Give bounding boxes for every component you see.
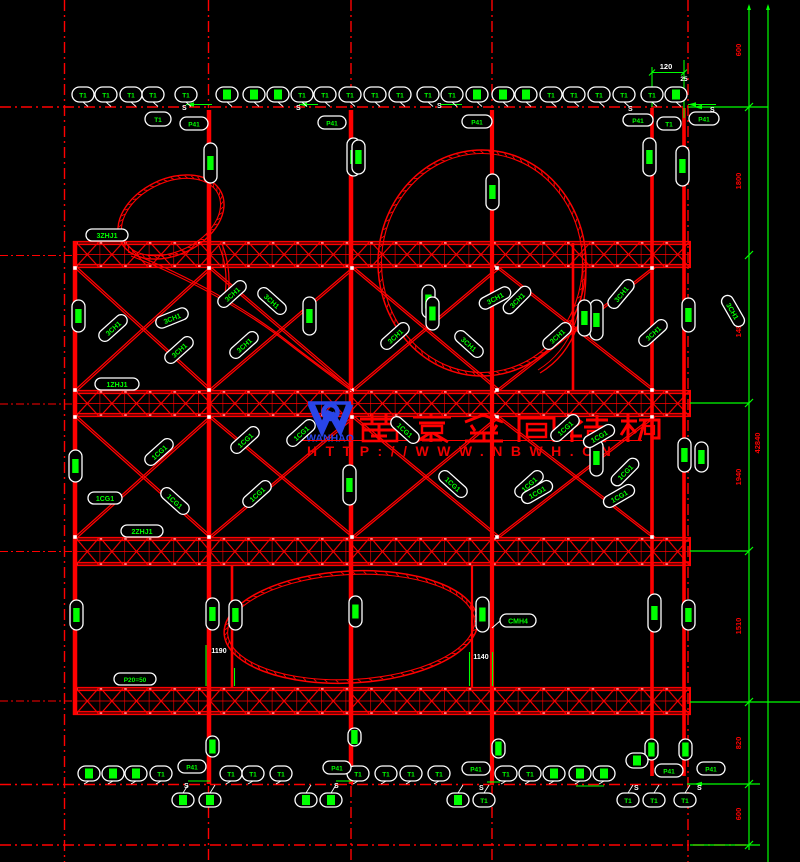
svg-text:S: S — [634, 785, 639, 792]
svg-text:P41: P41 — [471, 120, 483, 127]
svg-text:P41: P41 — [188, 122, 200, 129]
svg-text:T1: T1 — [407, 772, 415, 779]
svg-text:T1: T1 — [448, 93, 456, 100]
svg-text:P41: P41 — [663, 769, 675, 776]
svg-text:T1: T1 — [298, 93, 306, 100]
svg-text:T1: T1 — [321, 93, 329, 100]
svg-text:HTTP://WWW.NBWH.CN: HTTP://WWW.NBWH.CN — [307, 443, 619, 459]
svg-text:2ZHJ1: 2ZHJ1 — [131, 529, 152, 536]
svg-text:T1: T1 — [665, 122, 673, 129]
svg-text:T1: T1 — [526, 772, 534, 779]
svg-text:S: S — [437, 103, 442, 110]
svg-text:T1: T1 — [227, 772, 235, 779]
svg-text:T1: T1 — [396, 93, 404, 100]
svg-text:1190: 1190 — [211, 648, 226, 655]
svg-text:120: 120 — [660, 62, 673, 71]
svg-text:T1: T1 — [424, 93, 432, 100]
svg-text:P41: P41 — [470, 767, 482, 774]
svg-text:T1: T1 — [249, 772, 257, 779]
svg-text:600: 600 — [734, 44, 743, 57]
svg-text:T1: T1 — [149, 93, 157, 100]
svg-text:T1: T1 — [127, 93, 135, 100]
svg-text:1940: 1940 — [734, 469, 743, 486]
svg-text:P41: P41 — [326, 121, 338, 128]
svg-text:T1: T1 — [502, 772, 510, 779]
svg-text:T1: T1 — [382, 772, 390, 779]
svg-text:S: S — [182, 105, 187, 112]
svg-text:1140: 1140 — [473, 654, 488, 661]
svg-text:P41: P41 — [632, 118, 644, 125]
svg-text:T1: T1 — [277, 772, 285, 779]
svg-text:T1: T1 — [435, 772, 443, 779]
svg-text:T1: T1 — [547, 93, 555, 100]
svg-text:T1: T1 — [157, 772, 165, 779]
svg-text:T1: T1 — [154, 117, 162, 124]
svg-text:42840: 42840 — [753, 433, 762, 454]
svg-text:T1: T1 — [354, 772, 362, 779]
svg-text:3ZHJ1: 3ZHJ1 — [96, 233, 117, 240]
svg-text:600: 600 — [734, 808, 743, 821]
svg-text:S: S — [296, 105, 301, 112]
svg-text:T1: T1 — [480, 798, 488, 805]
svg-text:T1: T1 — [681, 798, 689, 805]
svg-text:T1: T1 — [182, 93, 190, 100]
svg-text:P41: P41 — [705, 767, 717, 774]
svg-text:S: S — [697, 785, 702, 792]
svg-text:P20=50: P20=50 — [124, 677, 147, 684]
svg-text:P41: P41 — [331, 766, 343, 773]
svg-text:T1: T1 — [624, 798, 632, 805]
svg-text:S: S — [628, 106, 633, 113]
svg-text:T1: T1 — [595, 93, 603, 100]
svg-text:P41: P41 — [186, 765, 198, 772]
svg-text:1800: 1800 — [734, 173, 743, 190]
svg-text:1CG1: 1CG1 — [96, 496, 114, 503]
svg-text:S: S — [479, 785, 484, 792]
svg-text:S: S — [184, 783, 189, 790]
svg-text:1ZHJ1: 1ZHJ1 — [106, 382, 127, 389]
svg-text:25: 25 — [680, 76, 688, 83]
svg-text:T1: T1 — [648, 93, 656, 100]
svg-text:T1: T1 — [79, 93, 87, 100]
svg-text:T1: T1 — [102, 93, 110, 100]
svg-text:T1: T1 — [371, 93, 379, 100]
svg-text:T1: T1 — [570, 93, 578, 100]
svg-text:T1: T1 — [650, 798, 658, 805]
svg-text:1510: 1510 — [734, 618, 743, 635]
svg-text:T1: T1 — [620, 93, 628, 100]
svg-text:CMH4: CMH4 — [508, 619, 528, 626]
svg-text:T1: T1 — [346, 93, 354, 100]
svg-text:820: 820 — [734, 737, 743, 750]
svg-text:P41: P41 — [698, 117, 710, 124]
